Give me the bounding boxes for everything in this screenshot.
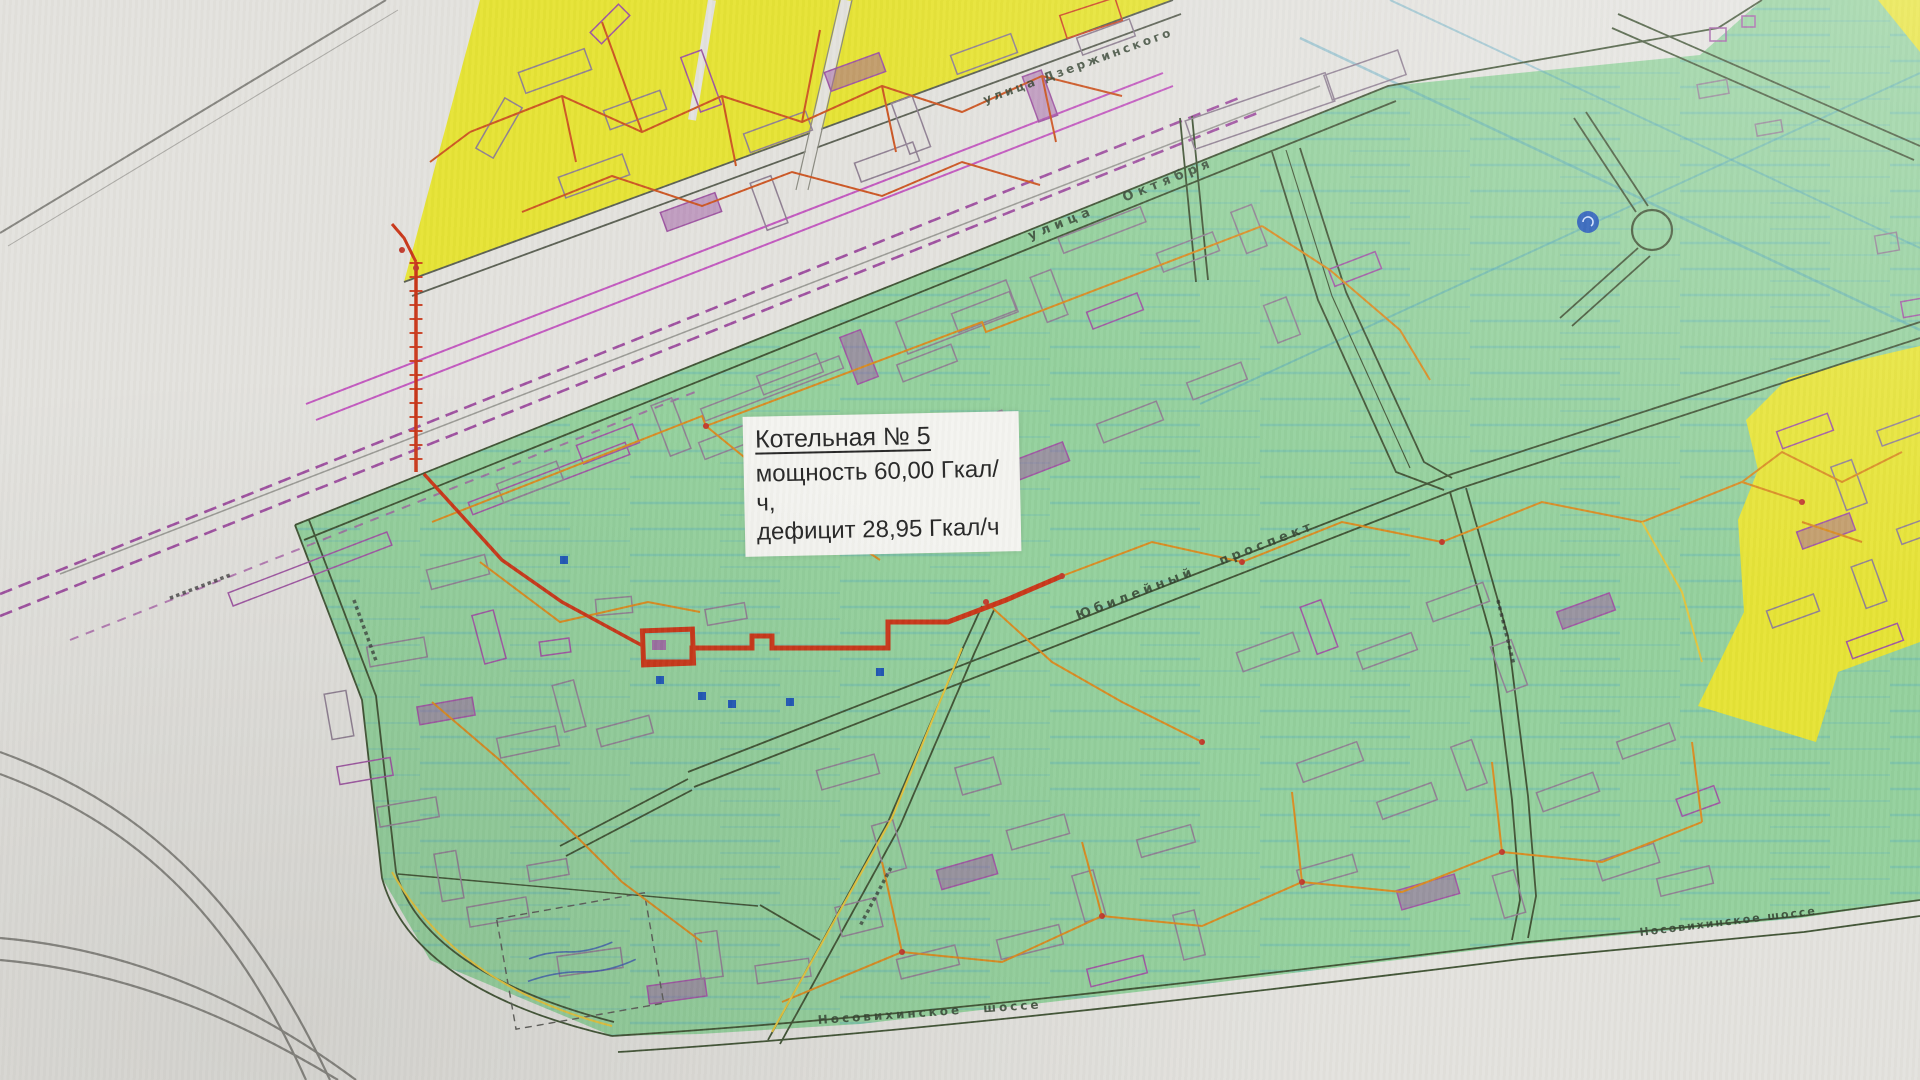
pipe-junction-node	[1299, 879, 1305, 885]
building	[750, 176, 788, 231]
blue-point-marker	[1577, 211, 1599, 233]
pipe-junction-node	[1799, 499, 1805, 505]
building	[891, 96, 930, 154]
valve-marker	[786, 698, 794, 706]
boiler-annex	[652, 640, 666, 650]
pipe-junction-node	[1499, 849, 1505, 855]
street-label-unreadable: ▪▪▪▪▪▪▪▪▪▪	[168, 570, 234, 602]
pipe-junction-node	[1059, 573, 1065, 579]
building	[324, 690, 354, 739]
road-northwest-corner	[0, 0, 386, 233]
valve-marker	[560, 556, 568, 564]
pipe-junction-node	[703, 423, 709, 429]
map-photo: улица Дзержинского улица Октября Юбилейн…	[0, 0, 1920, 1080]
annotation-title: Котельная № 5	[755, 421, 931, 455]
pipe-junction-node	[899, 949, 905, 955]
pipe-junction-node	[1439, 539, 1445, 545]
pipe-junction-node	[413, 265, 419, 271]
annotation-deficit: дефицит 28,95 Гкал/ч	[757, 514, 1000, 546]
valve-marker	[656, 676, 664, 684]
valve-marker	[876, 668, 884, 676]
pipe-junction-node	[1199, 739, 1205, 745]
valve-marker	[698, 692, 706, 700]
pipe-junction-node	[1099, 913, 1105, 919]
building	[660, 193, 721, 232]
supply-zones	[295, 0, 1920, 1036]
annotation-capacity: мощность 60,00 Гкал/ч,	[755, 455, 999, 516]
annotation-box: Котельная № 5 мощность 60,00 Гкал/ч, деф…	[743, 411, 1022, 557]
building	[854, 142, 919, 182]
valve-marker	[728, 700, 736, 708]
pipe-junction-node	[983, 599, 989, 605]
pipe-junction-node	[399, 247, 405, 253]
